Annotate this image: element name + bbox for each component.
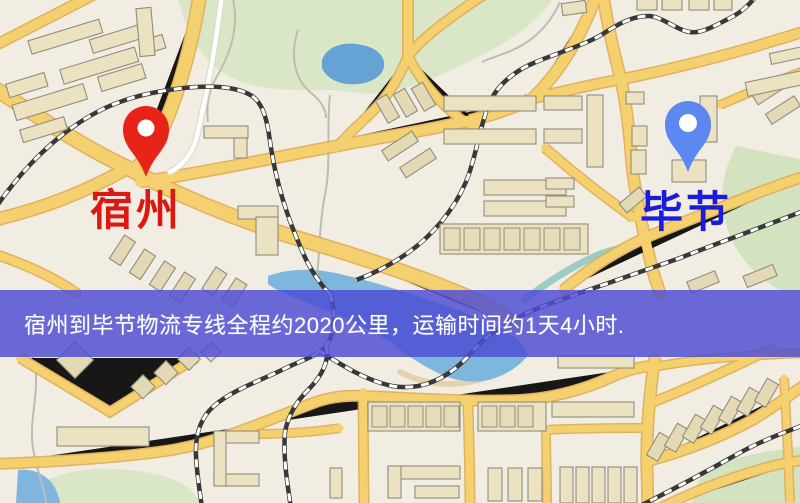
route-info-banner: 宿州到毕节物流专线全程约2020公里，运输时间约1天4小时. bbox=[0, 290, 800, 357]
origin-city-label: 宿州 bbox=[90, 176, 182, 238]
map-canvas bbox=[0, 0, 800, 503]
logistics-route-map: 宿州到毕节物流专线全程约2020公里，运输时间约1天4小时. 宿州 毕节 bbox=[0, 0, 800, 503]
destination-city-label: 毕节 bbox=[640, 178, 732, 240]
route-info-text: 宿州到毕节物流专线全程约2020公里，运输时间约1天4小时. bbox=[0, 308, 625, 340]
